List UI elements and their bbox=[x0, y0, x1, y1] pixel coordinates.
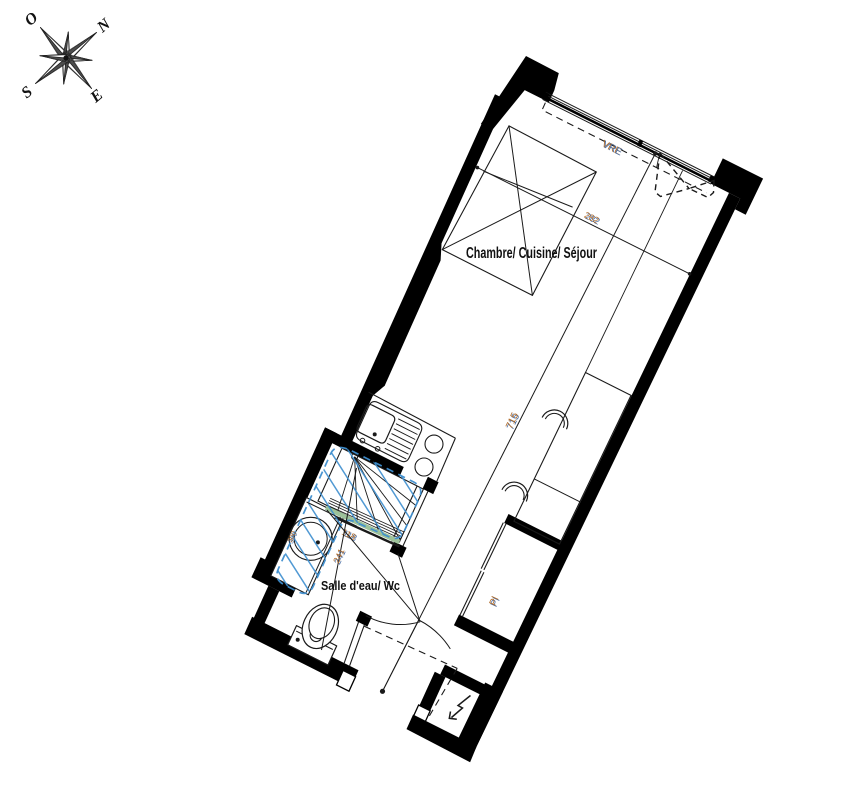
svg-text:Salle d'eau/ Wc: Salle d'eau/ Wc bbox=[321, 578, 400, 593]
svg-text:Chambre/ Cuisine/ Séjour: Chambre/ Cuisine/ Séjour bbox=[466, 245, 597, 262]
